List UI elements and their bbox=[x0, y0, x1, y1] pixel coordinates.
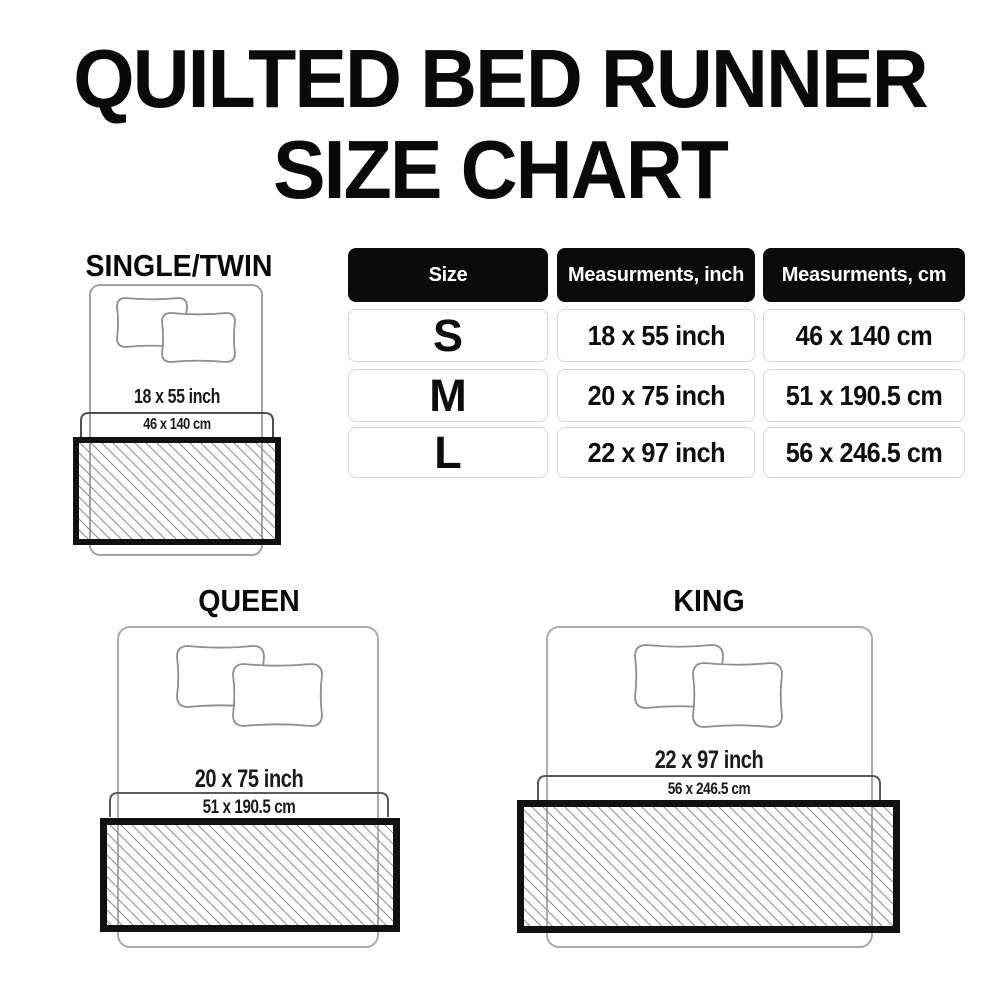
table-cell-size-m: M bbox=[348, 369, 548, 422]
inch-value: 18 x 55 inch bbox=[587, 320, 724, 352]
table-cell-cm-m: 51 x 190.5 cm bbox=[763, 369, 965, 422]
size-value: M bbox=[429, 373, 467, 418]
queen-cm-dimension: 51 x 190.5 cm bbox=[203, 798, 296, 817]
bed-runner-swatch bbox=[521, 804, 897, 930]
size-value: S bbox=[433, 313, 463, 358]
cm-value: 51 x 190.5 cm bbox=[786, 380, 943, 412]
table-header-inch: Measurments, inch bbox=[557, 248, 755, 302]
table-cell-inch-m: 20 x 75 inch bbox=[557, 369, 755, 422]
queen-label: QUEEN bbox=[198, 585, 299, 616]
pillow-front-icon bbox=[693, 663, 782, 727]
table-cell-size-s: S bbox=[348, 309, 548, 362]
cm-value: 46 x 140 cm bbox=[796, 320, 933, 352]
inch-value: 20 x 75 inch bbox=[587, 380, 724, 412]
single-twin-inch-dimension: 18 x 55 inch bbox=[134, 387, 220, 407]
bed-runner-swatch bbox=[76, 440, 278, 542]
page-title-line2: SIZE CHART bbox=[25, 128, 975, 211]
table-header-size: Size bbox=[348, 248, 548, 302]
king-cm-dimension: 56 x 246.5 cm bbox=[668, 780, 751, 797]
size-value: L bbox=[434, 430, 462, 475]
page-title-line1: QUILTED BED RUNNER bbox=[25, 37, 975, 120]
king-inch-dimension: 22 x 97 inch bbox=[655, 748, 764, 773]
size-chart-infographic: QUILTED BED RUNNER SIZE CHART SINGLE/TWI… bbox=[0, 0, 1000, 1000]
table-header-cm: Measurments, cm bbox=[763, 248, 965, 302]
queen-inch-dimension: 20 x 75 inch bbox=[195, 767, 304, 792]
single-twin-cm-dimension: 46 x 140 cm bbox=[143, 417, 210, 433]
cm-value: 56 x 246.5 cm bbox=[786, 437, 943, 469]
king-label: KING bbox=[673, 585, 744, 616]
table-cell-inch-s: 18 x 55 inch bbox=[557, 309, 755, 362]
table-cell-inch-l: 22 x 97 inch bbox=[557, 427, 755, 478]
pillow-front-icon bbox=[233, 664, 322, 726]
single-twin-label: SINGLE/TWIN bbox=[86, 250, 273, 281]
inch-value: 22 x 97 inch bbox=[587, 437, 724, 469]
bed-runner-swatch bbox=[104, 822, 397, 929]
pillow-front-icon bbox=[162, 313, 235, 362]
table-cell-cm-s: 46 x 140 cm bbox=[763, 309, 965, 362]
table-cell-size-l: L bbox=[348, 427, 548, 478]
table-cell-cm-l: 56 x 246.5 cm bbox=[763, 427, 965, 478]
